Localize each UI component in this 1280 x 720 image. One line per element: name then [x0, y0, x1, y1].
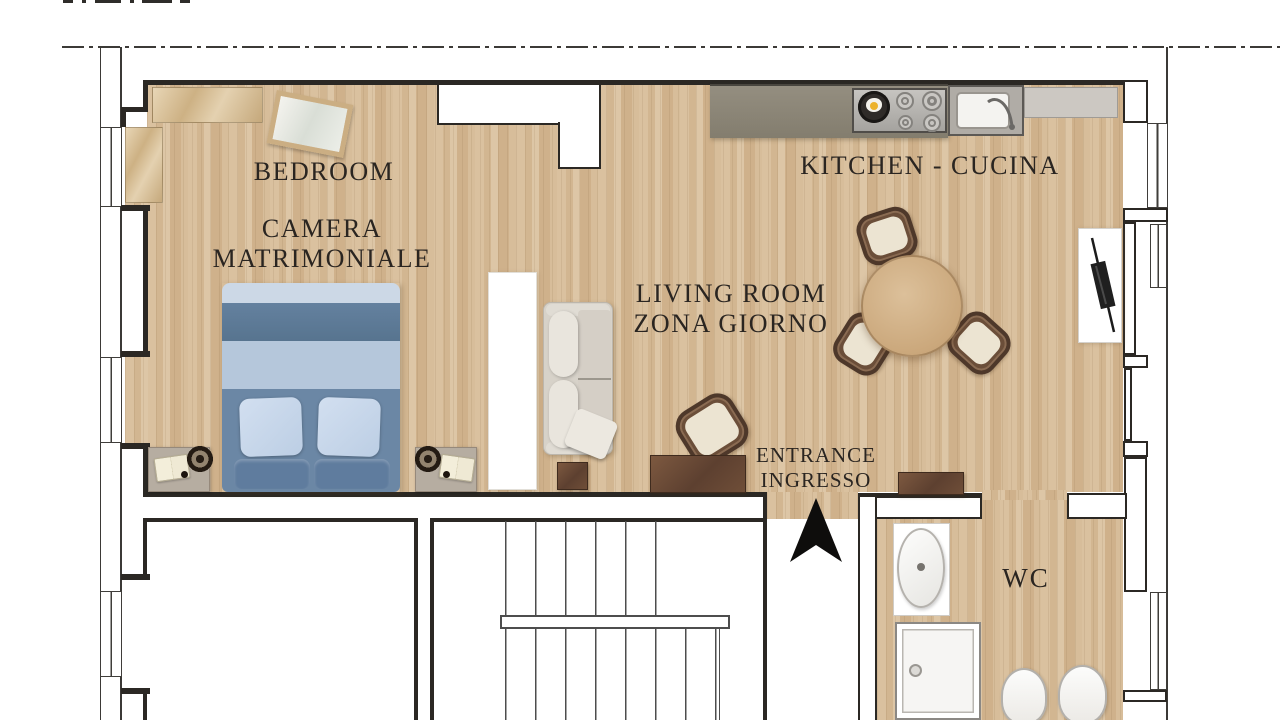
- wall-notch: [558, 85, 601, 169]
- stairs-upper-flight: [505, 521, 658, 615]
- burner-icon: [923, 114, 941, 132]
- kitchen-sink: [948, 85, 1024, 136]
- dimension-mark: [142, 0, 172, 3]
- room-label-line: MATRIMONIALE: [172, 244, 472, 274]
- dimension-mark: [130, 0, 134, 3]
- sofa-back-cushion: [549, 311, 578, 377]
- burner-icon: [922, 91, 942, 111]
- property-boundary-line: [62, 46, 1280, 49]
- stairs-handrail: [500, 615, 730, 629]
- bed-cushion: [314, 459, 390, 489]
- shower-tray: [895, 622, 981, 720]
- stairs-lower-flight: [505, 629, 720, 720]
- lamp-icon: [186, 445, 214, 473]
- bed-sheet-fold: [222, 283, 400, 303]
- window: [100, 591, 122, 677]
- room-label-entrance: ENTRANCE INGRESSO: [736, 443, 896, 493]
- dining-table: [861, 255, 963, 357]
- wc-wall: [858, 497, 877, 720]
- room-label-wc: WC: [986, 563, 1066, 594]
- room-wall: [143, 518, 147, 578]
- wall-notch-patch: [558, 85, 563, 122]
- dimension-mark: [95, 0, 121, 3]
- wall-block: [1123, 441, 1148, 457]
- egg-yolk: [870, 102, 878, 110]
- tv-panel: [1078, 228, 1122, 343]
- wall-segment: [763, 492, 767, 720]
- dimension-mark: [180, 0, 190, 3]
- wc-door-floor: [982, 490, 1067, 500]
- window: [1150, 224, 1167, 288]
- window: [100, 127, 122, 207]
- room-wall: [143, 692, 147, 720]
- stairwell-wall: [430, 518, 434, 720]
- wall-block: [1124, 368, 1132, 441]
- cup: [443, 471, 450, 478]
- window: [1147, 123, 1168, 208]
- floor-plan: BEDROOM CAMERA MATRIMONIALE KITCHEN - CU…: [0, 0, 1280, 720]
- wall-segment: [143, 443, 148, 492]
- room-wall: [143, 518, 417, 522]
- room-label-line: CAMERA: [172, 214, 472, 244]
- side-table: [557, 462, 588, 490]
- window-niche-floor: [125, 357, 148, 443]
- wall-segment: [121, 112, 126, 127]
- room-label-line: ENTRANCE: [736, 443, 896, 468]
- cabinet: [125, 127, 163, 203]
- sink-basin: [956, 92, 1010, 129]
- double-bed: [222, 283, 400, 492]
- wall-block: [1123, 80, 1148, 123]
- wall-block: [1124, 457, 1147, 592]
- window: [1150, 592, 1167, 690]
- sideboard: [650, 455, 746, 493]
- dimension-mark: [63, 0, 73, 3]
- bed-cushion: [234, 459, 310, 489]
- wall-segment: [121, 351, 150, 357]
- bed-pillow: [239, 397, 303, 457]
- wardrobe: [152, 87, 263, 123]
- cabinet: [898, 472, 964, 495]
- dimension-mark: [82, 0, 86, 3]
- bed-pillow: [317, 397, 381, 457]
- window: [100, 357, 122, 443]
- bed-blanket-light: [222, 341, 400, 389]
- room-wall: [414, 518, 418, 720]
- burner-icon: [896, 92, 914, 110]
- bed-blanket-dark: [222, 303, 400, 341]
- kitchen-counter-light: [1024, 87, 1118, 118]
- wall-block: [1123, 208, 1168, 222]
- room-label-line: INGRESSO: [736, 468, 896, 493]
- stove: [852, 88, 947, 133]
- room-label-bedroom: BEDROOM: [184, 157, 464, 187]
- cup: [181, 471, 188, 478]
- bidet: [1058, 665, 1107, 720]
- toilet: [1001, 668, 1047, 720]
- partition-closet: [488, 272, 537, 490]
- wall-block: [1123, 690, 1167, 702]
- open-book: [438, 454, 475, 482]
- shower-drain: [909, 664, 922, 677]
- entrance-vestibule-floor: [767, 492, 858, 519]
- wc-wall: [1067, 493, 1127, 519]
- wc-wall: [877, 498, 982, 519]
- room-label-bedroom-it: CAMERA MATRIMONIALE: [172, 214, 472, 274]
- room-label-living: LIVING ROOM ZONA GIORNO: [591, 279, 871, 339]
- room-label-line: LIVING ROOM: [591, 279, 871, 309]
- room-label-kitchen: KITCHEN - CUCINA: [770, 151, 1090, 181]
- room-label-line: ZONA GIORNO: [591, 309, 871, 339]
- burner-icon: [898, 115, 913, 130]
- wall-segment: [143, 210, 148, 356]
- frying-pan-icon: [858, 91, 890, 123]
- lamp-icon: [414, 445, 442, 473]
- wall-block: [1123, 222, 1136, 355]
- wall-notch: [437, 85, 558, 125]
- wall-block: [1123, 355, 1148, 368]
- wc-sink-drain: [917, 563, 925, 571]
